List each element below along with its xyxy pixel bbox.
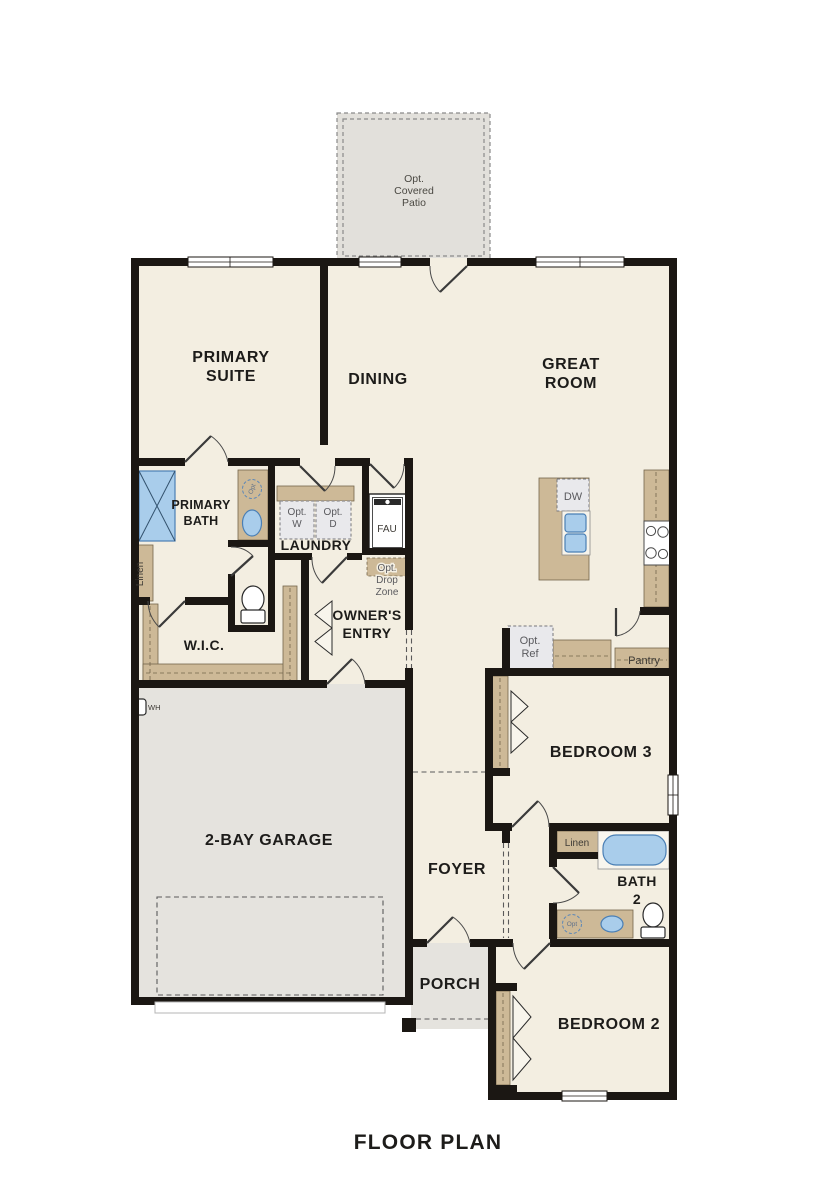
wall-fau-left: [362, 466, 369, 555]
bath2-toilet-tank: [641, 927, 665, 938]
owners-entry-label-line1: OWNER'S: [332, 607, 401, 623]
wall-kitchen-bedroom3: [485, 668, 677, 676]
wall-fau-bottom: [362, 548, 405, 555]
wall-suite-dining: [320, 262, 328, 445]
opt-washer-label-line1: Opt.: [288, 507, 307, 518]
bath2-label-line1: BATH: [617, 873, 656, 889]
bath2-label-line2: 2: [633, 891, 641, 907]
patio-label-line3: Patio: [402, 197, 426, 209]
opt-ref-label-line2: Ref: [521, 648, 539, 660]
primary-suite-label-line2: SUITE: [206, 368, 256, 385]
drop-zone-label-line1: Opt.: [378, 563, 397, 574]
water-heater-label: WH: [148, 703, 161, 712]
laundry-shelf: [277, 486, 354, 501]
primary-suite-label-line1: PRIMARY: [192, 349, 269, 366]
wall-garage-top-a: [131, 680, 327, 688]
bath2-sink: [601, 916, 623, 932]
wall-pantry-top-stub: [640, 607, 677, 615]
wall-owners-entry-left: [301, 553, 309, 688]
dishwasher-label: DW: [564, 491, 583, 503]
foyer-label: FOYER: [428, 861, 486, 878]
drop-zone-label-line3: Zone: [376, 587, 399, 598]
opt-dryer-label-line1: Opt.: [324, 507, 343, 518]
porch-column: [402, 1018, 416, 1032]
wall-toilet-room-bottom: [228, 625, 275, 632]
wall-bed2-closet-bottom-stub: [492, 1085, 517, 1093]
drop-zone-label-line2: Drop: [376, 575, 398, 586]
kitchen-counter-bottom: [553, 640, 611, 672]
porch-label: PORCH: [420, 976, 481, 993]
bedroom3-label: BEDROOM 3: [550, 744, 652, 761]
wall-bath2-linen-bottom: [549, 852, 598, 859]
great-room-label-line2: ROOM: [545, 375, 597, 392]
wall-suite-bottom-b: [228, 458, 300, 466]
wall-bath2-left-b: [549, 903, 557, 939]
wall-bed3-bottom-b: [549, 823, 677, 831]
wall-garage-right: [405, 680, 413, 1005]
wall-bed2-closet-top-stub: [492, 983, 517, 991]
wall-exterior-right: [669, 258, 677, 1100]
wall-bath-block-right-lower: [405, 668, 413, 688]
laundry-label: LAUNDRY: [281, 537, 352, 553]
bath2-linen-label: Linen: [565, 838, 589, 849]
fau-vent-dot: [385, 500, 389, 504]
wall-ref-nook-stub: [502, 628, 510, 676]
primary-toilet-tank: [241, 610, 265, 623]
bedroom2-label: BEDROOM 2: [558, 1016, 660, 1033]
primary-toilet-bowl: [242, 586, 264, 612]
primary-sink: [243, 510, 262, 536]
primary-bath-label-line1: PRIMARY: [171, 498, 231, 512]
floor-plan-drawing: Opt. Covered Patio PRIMARY SUITE DINING …: [0, 0, 833, 1202]
wall-toilet-room-top: [228, 540, 275, 547]
primary-bath-label-line2: BATH: [184, 514, 219, 528]
wall-laundry-bottom-a: [275, 553, 312, 560]
wall-wic-top-b: [185, 597, 228, 605]
wall-exterior-left: [131, 258, 139, 1005]
wall-laundry-bottom-b: [347, 553, 362, 560]
patio-door-opening: [430, 258, 467, 266]
wall-bed3-left-lower: [485, 768, 493, 830]
island-sink-basin1: [565, 514, 586, 532]
garage-door-apron: [155, 1002, 385, 1013]
primary-linen-label: Linen: [135, 562, 146, 586]
garage-label: 2-BAY GARAGE: [205, 832, 333, 849]
wall-bath2-south: [550, 939, 677, 947]
opt-washer-label-line2: W: [292, 519, 302, 530]
wall-suite-bottom-a: [139, 458, 185, 466]
opt-ref-label-line1: Opt.: [520, 635, 541, 647]
wic-label: W.I.C.: [184, 637, 225, 653]
opt-dryer-label-line2: D: [329, 519, 336, 530]
wall-bath-top-a: [335, 458, 370, 466]
drawing-title: FLOOR PLAN: [354, 1131, 503, 1154]
fau-label: FAU: [377, 524, 396, 535]
patio-label-line2: Covered: [394, 185, 434, 197]
pantry-label: Pantry: [628, 655, 660, 667]
wall-bath-block-right: [405, 458, 413, 630]
owners-entry-label-line2: ENTRY: [343, 625, 392, 641]
wall-vanity-toilet-right: [268, 466, 275, 632]
floor-plan-page: Opt. Covered Patio PRIMARY SUITE DINING …: [0, 0, 833, 1202]
dining-label: DINING: [348, 371, 408, 388]
bath2-toilet-bowl: [643, 903, 663, 927]
wall-bed3-left-upper: [485, 668, 493, 778]
bath2-tub: [603, 835, 666, 865]
wall-bed3-bottom-a: [485, 823, 512, 831]
wall-bedroom2-left: [488, 940, 496, 1100]
wall-foyer-south-b: [470, 939, 513, 947]
wall-hall-stub: [502, 831, 510, 843]
bath2-opt-sink-label: Opt: [567, 921, 578, 928]
wall-toilet-room-left: [228, 574, 235, 632]
great-room-label-line1: GREAT: [542, 356, 600, 373]
island-sink-basin2: [565, 534, 586, 552]
patio-label-line1: Opt.: [404, 173, 424, 185]
wall-bath2-left-a: [549, 831, 557, 867]
